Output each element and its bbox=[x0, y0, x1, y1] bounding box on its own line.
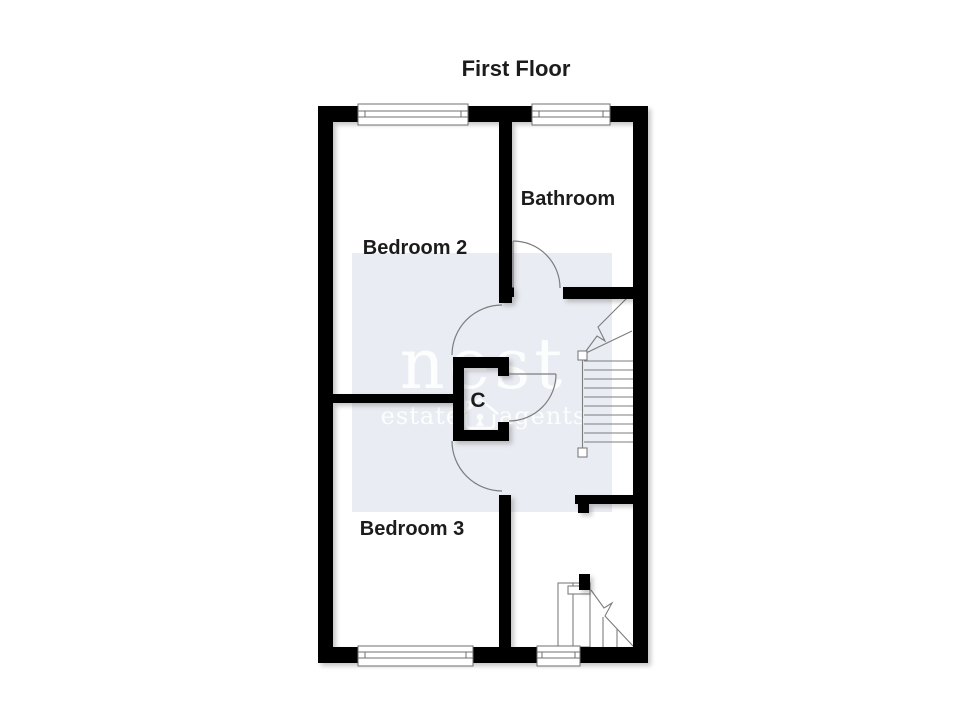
page-title: First Floor bbox=[462, 56, 571, 81]
wall-bedroom2-bathroom bbox=[499, 122, 512, 303]
wall-landing-stub bbox=[578, 495, 589, 513]
window-bottom-right bbox=[537, 646, 580, 666]
room-label-bedroom2: Bedroom 2 bbox=[363, 237, 467, 259]
wall-stair-post bbox=[579, 574, 590, 590]
watermark-tagline-left: estate bbox=[381, 402, 461, 430]
wall-jamb-bathroom-door bbox=[508, 287, 514, 297]
wall-closet-jamb-bottom bbox=[498, 422, 509, 441]
room-label-bedroom3: Bedroom 3 bbox=[360, 518, 464, 540]
room-label-closet: C bbox=[470, 389, 485, 412]
wall-exterior-left bbox=[318, 106, 333, 663]
wall-bathroom-bottom bbox=[563, 287, 633, 299]
stair-newel-bottom bbox=[578, 448, 587, 457]
room-label-bathroom: Bathroom bbox=[521, 188, 615, 210]
stair-newel-top bbox=[578, 351, 587, 360]
wall-closet-left bbox=[453, 357, 464, 441]
window-bottom-left bbox=[358, 646, 473, 666]
window-top-right bbox=[532, 104, 610, 125]
wall-bedroom3-hall bbox=[499, 495, 511, 648]
floorplan-svg: nest estate agents bbox=[0, 0, 980, 712]
wall-bedroom2-bedroom3 bbox=[333, 394, 455, 403]
wall-exterior-right bbox=[633, 106, 648, 663]
wall-closet-jamb-top bbox=[498, 357, 509, 376]
floorplan-canvas: nest estate agents bbox=[0, 0, 980, 712]
window-top-left bbox=[358, 104, 468, 125]
